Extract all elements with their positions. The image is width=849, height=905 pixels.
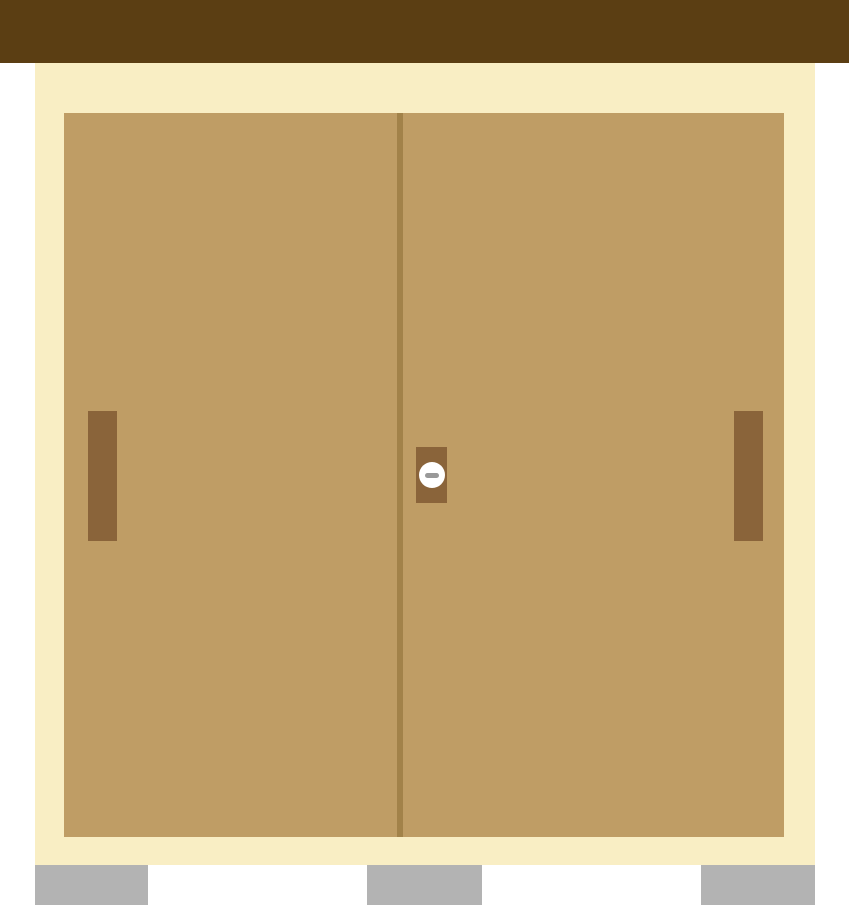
foot-center	[367, 865, 482, 905]
foot-right	[701, 865, 815, 905]
foot-left	[35, 865, 148, 905]
door-seam	[397, 113, 403, 837]
right-door-pull[interactable]	[734, 411, 763, 541]
right-sliding-door[interactable]	[400, 113, 784, 837]
roof-beam	[0, 0, 849, 63]
lock-slot-icon	[425, 473, 439, 478]
lock-dial-icon[interactable]	[419, 462, 445, 488]
closet-scene	[0, 0, 849, 905]
lock-plate[interactable]	[416, 447, 447, 503]
left-door-pull[interactable]	[88, 411, 117, 541]
